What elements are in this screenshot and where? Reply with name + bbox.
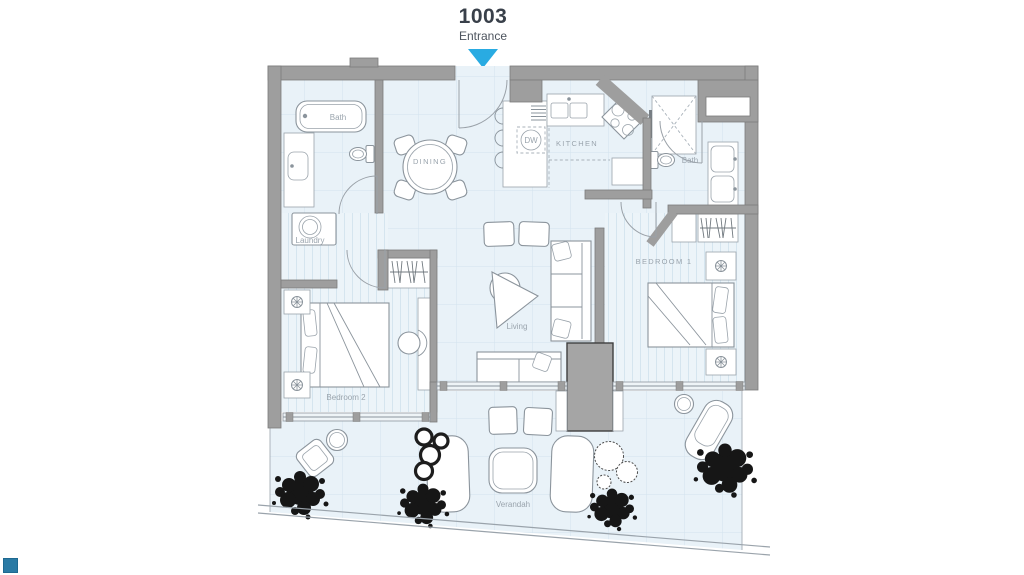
verandah-sofa — [550, 435, 595, 512]
pillow — [303, 346, 318, 373]
wall-niche — [706, 97, 750, 116]
shrub — [617, 462, 638, 483]
dining-table — [403, 140, 457, 194]
sliding-door-living — [437, 382, 567, 391]
kitchen-counter-right — [612, 158, 645, 185]
floor-plan-drawing: Bath DINING KITCHEN DW Bath BEDROOM 1 La… — [0, 0, 1024, 575]
lamp — [715, 260, 727, 272]
lamp — [291, 296, 303, 308]
bath1-label: Bath — [330, 113, 346, 122]
structural-column — [567, 343, 613, 431]
shrub — [597, 475, 611, 489]
pillow — [713, 316, 729, 343]
dishwasher-label: DW — [524, 136, 538, 145]
desk-chair — [398, 332, 420, 354]
dining — [393, 134, 468, 201]
laundry-label: Laundry — [296, 236, 325, 245]
kitchen-counter-top — [547, 94, 604, 126]
potted-plant — [416, 463, 433, 480]
stool — [489, 407, 518, 435]
pillow — [551, 318, 572, 339]
bath1-vanity — [284, 133, 314, 207]
lamp — [715, 356, 727, 368]
living-label: Living — [507, 322, 528, 331]
pillow — [551, 241, 572, 262]
kitchen-label: KITCHEN — [556, 139, 598, 148]
sliding-door-bedroom2 — [283, 413, 430, 422]
lamp — [291, 379, 303, 391]
ottoman — [519, 221, 550, 246]
floor-plan-page: 1003 Entrance — [0, 0, 1024, 575]
bedroom2-label: Bedroom 2 — [326, 393, 366, 402]
ottoman — [484, 221, 515, 246]
sliding-door-bedroom1 — [613, 382, 745, 391]
potted-plant — [416, 429, 432, 445]
verandah-label: Verandah — [496, 500, 530, 509]
bath2-label: Bath — [682, 156, 698, 165]
closet-shelf — [672, 214, 696, 242]
dining-label: DINING — [413, 157, 447, 166]
stool — [523, 407, 552, 435]
brand-marker — [3, 558, 18, 573]
bedroom1-label: BEDROOM 1 — [636, 257, 693, 266]
